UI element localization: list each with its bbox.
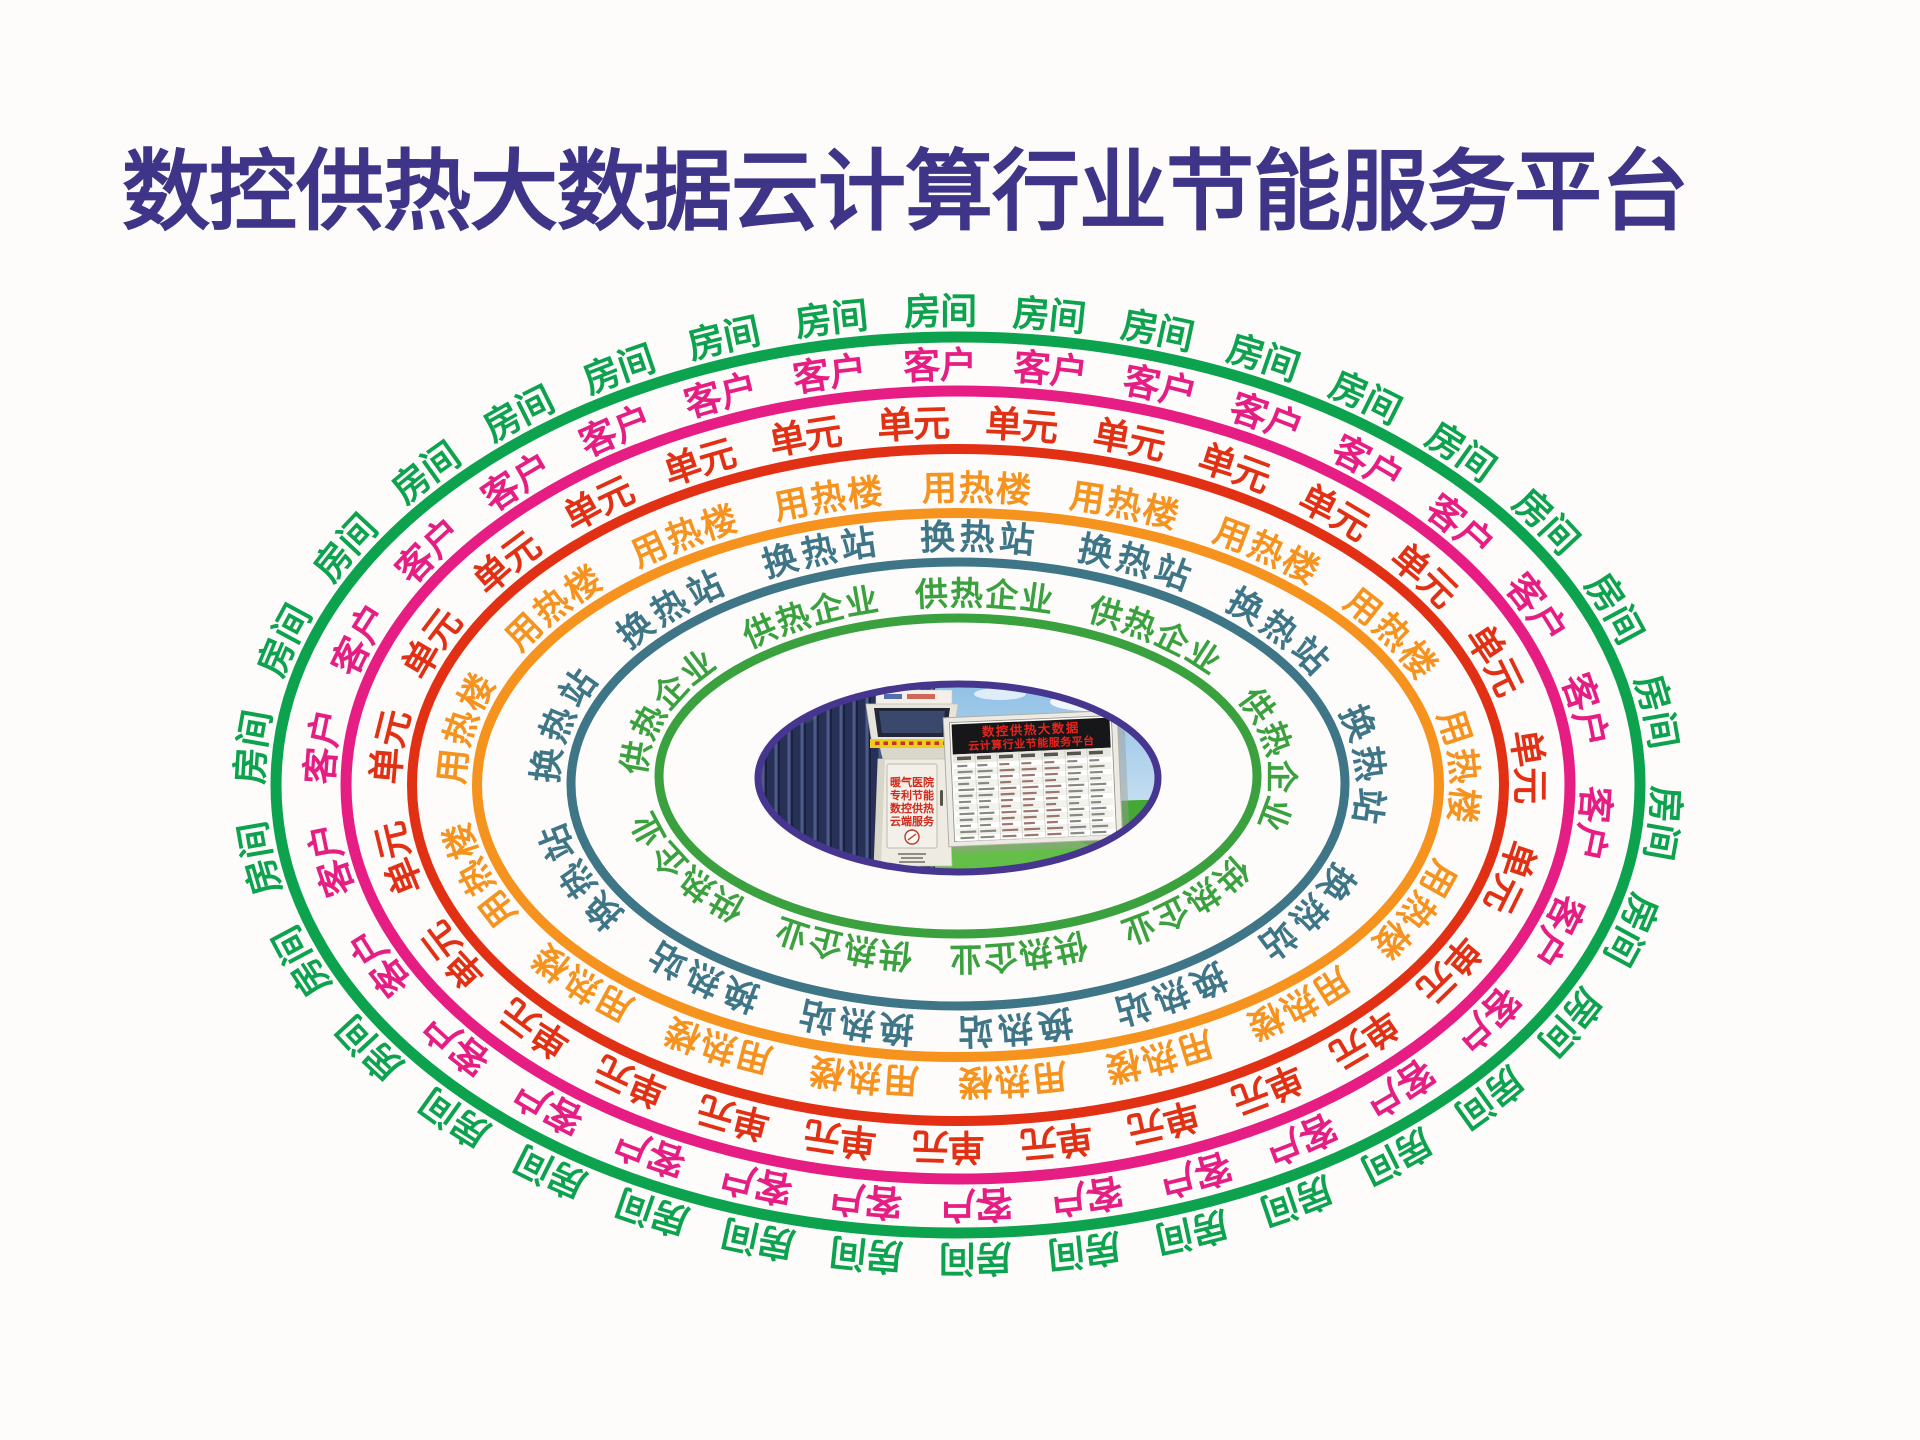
kiosk-ticker-mark <box>909 742 914 746</box>
kiosk-ticker-mark <box>884 742 889 746</box>
page-title: 数控供热大数据云计算行业节能服务平台 <box>122 140 1688 243</box>
board-cell-mark <box>957 765 967 768</box>
board-cell-mark <box>1021 762 1031 765</box>
kiosk-ticker-mark <box>935 742 940 746</box>
board-cell-mark <box>1001 805 1011 808</box>
platform-diagram: 数控供热大数据云计算行业节能服务平台 房间 房间 房间 房间 房间 房间 房间 … <box>0 0 1920 1440</box>
kiosk-door-line: 暖气医院 <box>890 775 934 789</box>
board-column-header-mark <box>999 754 1013 758</box>
kiosk: 暖气医院 专利节能 数控供热 云端服务 <box>866 690 958 866</box>
board-column-header-mark <box>1089 750 1103 754</box>
board-cell-mark <box>1023 804 1033 807</box>
board-cell-mark <box>959 807 969 810</box>
board-cell-mark <box>1089 759 1099 762</box>
board-column-header-mark <box>1067 751 1081 755</box>
board-column-header-mark <box>1021 753 1035 757</box>
kiosk-handle <box>940 790 943 806</box>
board-column-header-mark <box>957 756 971 760</box>
kiosk-ticker-mark <box>901 742 906 746</box>
kiosk-ticker-mark <box>918 742 923 746</box>
kiosk-ticker-mark <box>875 742 880 746</box>
board-cell-mark <box>1044 761 1054 764</box>
kiosk-door-line: 云端服务 <box>890 814 935 828</box>
board-cell-mark <box>977 764 987 767</box>
kiosk-footer-text-mark <box>899 861 925 863</box>
poster: 数控供热大数据云计算行业节能服务平台 房间 房间 房间 房间 房间 房间 房间 … <box>0 0 1920 1440</box>
kiosk-door-line: 数控供热 <box>890 801 934 815</box>
blinds-highlight <box>760 694 820 726</box>
kiosk-ticker-mark <box>892 742 897 746</box>
data-board: 数控供热大数据 云计算行业节能服务平台 <box>943 710 1130 854</box>
board-cell-mark <box>1046 803 1056 806</box>
kiosk-sign-text-mark <box>907 694 935 699</box>
kiosk-ticker-mark <box>926 742 931 746</box>
board-cell-mark <box>1067 760 1077 763</box>
kiosk-footer-text-mark <box>901 857 923 859</box>
board-cell-mark <box>1069 802 1079 805</box>
kiosk-sign-logo <box>884 694 902 699</box>
kiosk-ticker-text-marks <box>875 742 948 746</box>
kiosk-door-line: 专利节能 <box>890 788 934 802</box>
board-cell-mark <box>979 806 989 809</box>
board-cell-mark <box>999 763 1009 766</box>
board-column-header-mark <box>977 755 991 759</box>
kiosk-footer-text-mark <box>898 853 926 855</box>
kiosk-screen-content <box>879 711 945 733</box>
board-cell-mark <box>1091 801 1101 804</box>
board-column-header-mark <box>1044 752 1058 756</box>
